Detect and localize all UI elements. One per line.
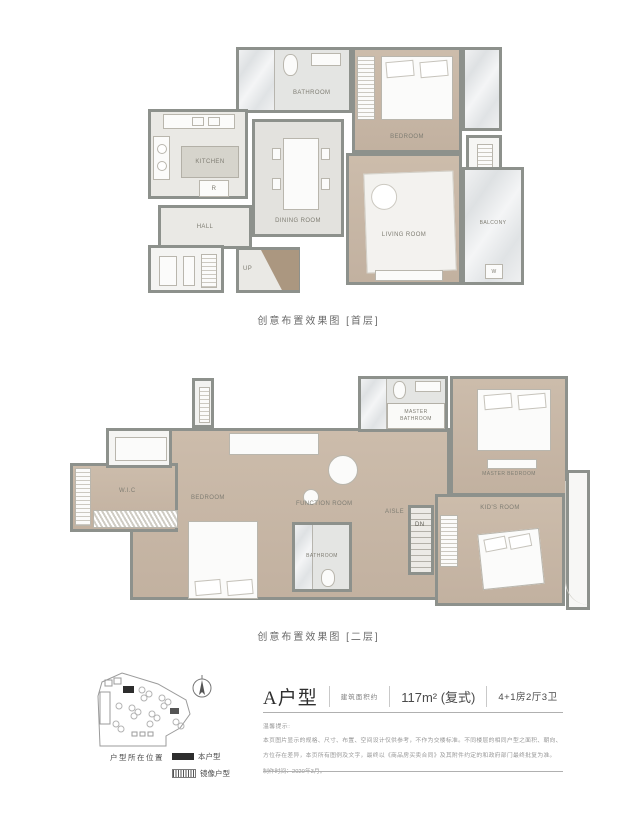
daybed-shape <box>115 437 167 461</box>
chair-shape <box>321 178 330 190</box>
shelf-shape <box>201 254 217 288</box>
room-hall: HALL <box>158 205 252 249</box>
room-label: BEDROOM <box>191 495 225 501</box>
this-unit-swatch-icon <box>172 753 194 760</box>
room-wic: W.I.C <box>70 463 178 532</box>
sink-shape <box>208 117 220 126</box>
sink-shape <box>311 53 341 66</box>
notes-block: 温馨提示: 本页图片显示的规格、尺寸、布置、空间设计仅供参考，不作为交楼标准。不… <box>263 721 565 775</box>
room-label: BATHROOM <box>295 553 349 559</box>
divider-top <box>263 712 563 713</box>
room-master-bedroom: MASTER BEDROOM <box>450 376 568 496</box>
pillow-shape <box>385 60 414 78</box>
nook-room <box>106 428 172 468</box>
closet-strip <box>462 47 502 131</box>
stairs-shape <box>261 250 299 290</box>
dining-table-shape <box>283 138 319 210</box>
bed-shape <box>477 389 551 451</box>
bed-shape <box>477 528 545 590</box>
stairs-label: DN <box>415 522 424 528</box>
chair-shape <box>321 148 330 160</box>
shower-shape <box>361 379 387 429</box>
wardrobe-shape <box>357 56 375 120</box>
closet-shape <box>229 433 319 455</box>
fridge-shape: R <box>199 180 229 197</box>
unit-name: A户型 <box>263 683 318 710</box>
closet-hatch-shape <box>93 510 178 528</box>
shelf-shape <box>75 468 91 526</box>
shower-shape <box>239 50 275 110</box>
divider <box>486 686 487 707</box>
wardrobe-shape <box>440 515 458 567</box>
mirror-unit-marker <box>170 708 179 714</box>
room-kitchen-first: KITCHEN R <box>148 109 248 199</box>
bed-shape <box>381 56 453 120</box>
room-label: FUNCTION ROOM <box>296 501 353 507</box>
floorplan-page: BATHROOM BEDROOM KITCHEN <box>0 0 637 840</box>
pillow-shape <box>517 393 546 410</box>
divider <box>389 686 390 707</box>
room-label: AISLE <box>385 509 404 515</box>
notes-body: 本页图片显示的规格、尺寸、布置、空间设计仅供参考，不作为交楼标准。不同楼层的相同… <box>263 734 565 764</box>
room-kids: KID'S ROOM <box>435 494 565 606</box>
second-floor-caption: 创意布置效果图 [二层] <box>0 628 637 643</box>
stairs-label: UP <box>243 266 252 272</box>
pillow-shape <box>419 60 448 78</box>
divider <box>329 686 330 707</box>
burner-shape <box>157 144 167 154</box>
room-dining: DINING ROOM <box>252 119 344 237</box>
room-label: BATHROOM <box>293 90 330 96</box>
unit-info-row: A户型 建筑面积约 117m² (复式) 4+1房2厅3卫 <box>263 683 558 709</box>
mirror-unit-swatch-icon <box>172 769 196 778</box>
unit-layout-value: 4+1房2厅3卫 <box>498 689 557 703</box>
notes-heading: 温馨提示: <box>263 721 565 730</box>
room-label: KID'S ROOM <box>438 505 562 511</box>
storage-room <box>148 245 224 293</box>
closet-stub <box>192 378 214 428</box>
room-label: MASTER BATHROOM <box>388 409 444 423</box>
room-label: LIVING ROOM <box>349 232 459 238</box>
room-label: KITCHEN <box>195 159 224 165</box>
room-bedroom-second: BEDROOM FUNCTION ROOM AISLE <box>130 428 450 600</box>
washer-label: W <box>491 269 496 275</box>
pillow-shape <box>226 579 253 596</box>
legend-title: 户型所在位置 <box>110 751 164 763</box>
legend-mirror-unit-row: 镜像户型 <box>172 768 230 779</box>
stairs-up-room: UP <box>236 247 300 293</box>
terrace-curve-shape <box>565 481 589 605</box>
room-label: BEDROOM <box>355 134 459 140</box>
toilet-shape <box>393 381 406 399</box>
pillow-shape <box>508 533 532 550</box>
room-label: W.I.C <box>119 488 136 494</box>
legend-this-unit-row: 本户型 <box>172 751 230 762</box>
room-balcony: BALCONY W <box>462 167 524 285</box>
room-living: LIVING ROOM <box>346 153 462 285</box>
room-master-bathroom: MASTER BATHROOM <box>358 376 448 432</box>
shelf-shape <box>199 387 210 423</box>
burner-shape <box>157 161 167 171</box>
unit-area-label: 建筑面积约 <box>341 691 379 701</box>
pillow-shape <box>483 393 512 410</box>
pillow-shape <box>483 536 507 553</box>
chair-shape <box>272 148 281 160</box>
pillow-shape <box>194 579 221 596</box>
bed-shape <box>188 521 258 599</box>
fridge-label: R <box>212 186 217 192</box>
this-unit-marker <box>123 686 134 693</box>
room-bedroom-first: BEDROOM <box>352 47 462 153</box>
north-compass-icon <box>193 675 211 697</box>
site-plan-legend: 户型所在位置 本户型 镜像户型 <box>110 751 230 779</box>
this-unit-label: 本户型 <box>198 751 221 762</box>
room-bathroom-second: BATHROOM <box>292 522 352 592</box>
mirror-unit-label: 镜像户型 <box>200 768 230 779</box>
stairs-down-room: DN <box>408 505 434 575</box>
bench-shape <box>487 459 537 469</box>
cabinet-shape <box>183 256 195 286</box>
round-table-shape <box>328 455 358 485</box>
counter-shape <box>163 114 235 129</box>
legend-items: 本户型 镜像户型 <box>172 751 230 779</box>
terrace <box>566 470 590 610</box>
stove-shape <box>153 136 170 180</box>
rug-shape <box>363 170 456 273</box>
armchair-shape <box>371 183 398 210</box>
sink-shape <box>415 381 441 392</box>
room-label: DINING ROOM <box>255 218 341 224</box>
kitchen-island: KITCHEN <box>181 146 239 178</box>
washer-shape: W <box>485 264 503 279</box>
divider-bottom <box>263 771 563 772</box>
toilet-shape <box>283 54 298 76</box>
room-label: MASTER BEDROOM <box>477 471 541 478</box>
chair-shape <box>272 178 281 190</box>
cabinet-shape <box>159 256 177 286</box>
first-floor-caption: 创意布置效果图 [首层] <box>0 312 637 327</box>
unit-area-value: 117m² (复式) <box>401 687 475 706</box>
room-label: HALL <box>161 224 249 230</box>
first-floor-plan: BATHROOM BEDROOM KITCHEN <box>140 33 542 295</box>
room-label-plaque: MASTER BATHROOM <box>387 403 445 429</box>
room-bathroom-first: BATHROOM <box>236 47 352 113</box>
second-floor-plan: BEDROOM FUNCTION ROOM AISLE W.I.C MASTER… <box>64 373 591 613</box>
room-label: BALCONY <box>465 220 521 226</box>
toilet-shape <box>321 569 335 587</box>
sink-shape <box>192 117 204 126</box>
sofa-shape <box>375 270 443 281</box>
